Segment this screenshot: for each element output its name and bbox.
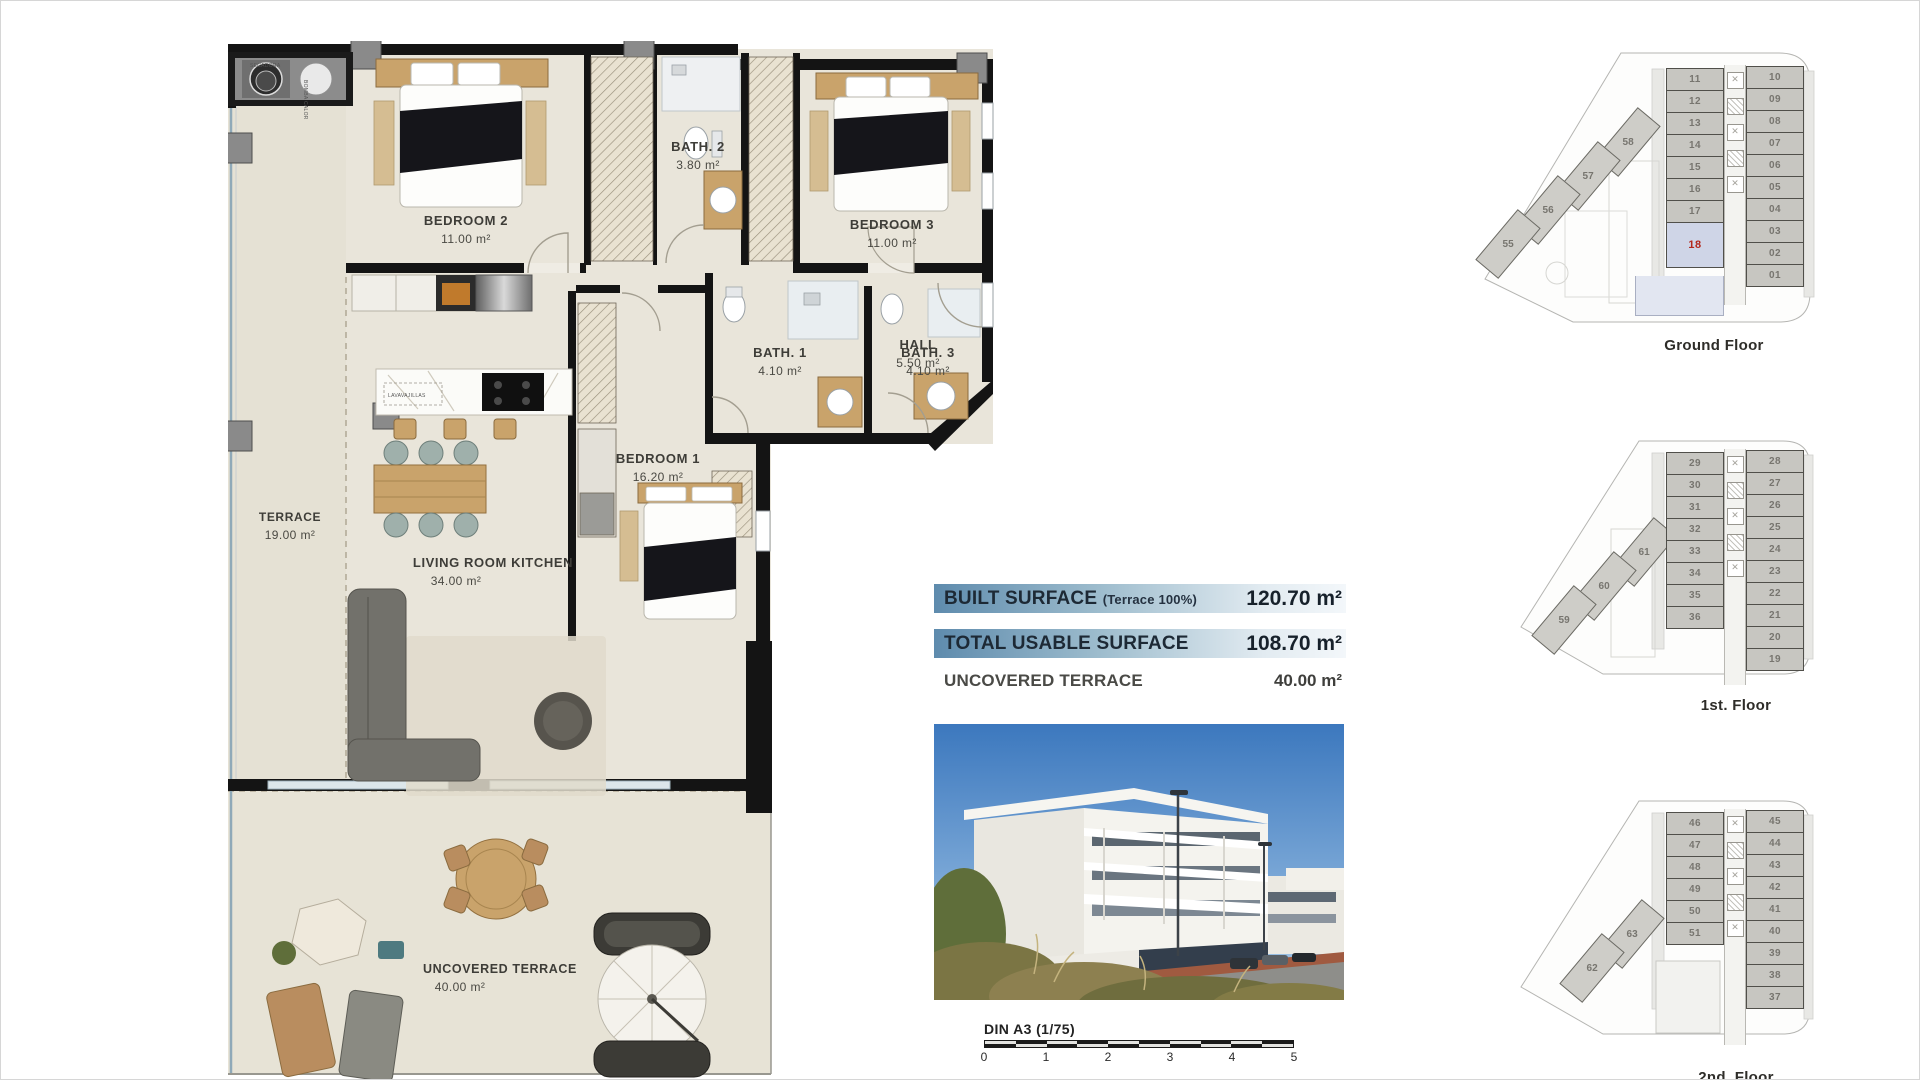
scale-segment (1108, 1041, 1139, 1047)
unit-number: 42 (1769, 882, 1781, 893)
stairs-icon (1727, 894, 1744, 911)
unit-number: 15 (1689, 162, 1701, 173)
unit-10: 10 (1746, 66, 1804, 89)
unit-51: 51 (1666, 922, 1724, 945)
built-surface-label: BUILT SURFACE (944, 588, 1097, 609)
unit-number: 49 (1689, 884, 1701, 895)
unit-59: 59 (1531, 585, 1596, 655)
unit-number: 56 (1542, 205, 1553, 216)
scale-tick: 2 (1105, 1050, 1112, 1064)
unit-02: 02 (1746, 242, 1804, 265)
unit-number: 21 (1769, 610, 1781, 621)
elevator-core: ✕ ✕ ✕ (1724, 809, 1746, 1045)
unit-23: 23 (1746, 560, 1804, 583)
unit-number: 23 (1769, 566, 1781, 577)
unit-number: 04 (1769, 204, 1781, 215)
svg-text:11.00 m²: 11.00 m² (441, 232, 491, 246)
unit-number: 57 (1582, 171, 1593, 182)
room-bath2: BATH. 2 (671, 139, 725, 154)
unit-number: 32 (1689, 524, 1701, 535)
svg-text:11.00 m²: 11.00 m² (867, 236, 917, 250)
unit-number: 24 (1769, 544, 1781, 555)
unit-01: 01 (1746, 264, 1804, 287)
right-unit-column: 10090807060504030201 (1746, 67, 1804, 287)
unit-33: 33 (1666, 540, 1724, 563)
built-surface-value: 120.70 m² (1246, 587, 1346, 611)
unit-62: 62 (1559, 933, 1624, 1003)
room-bath1: BATH. 1 (753, 345, 807, 360)
stairs-icon (1727, 842, 1744, 859)
unit-28: 28 (1746, 450, 1804, 473)
scale-segment (1201, 1041, 1232, 1047)
unit-number: 58 (1622, 137, 1633, 148)
unit-number: 09 (1769, 94, 1781, 105)
unit-number: 46 (1689, 818, 1701, 829)
unit-number: 35 (1689, 590, 1701, 601)
elevator-icon: ✕ (1727, 868, 1744, 885)
unit-number: 12 (1689, 96, 1701, 107)
stairs-icon (1727, 482, 1744, 499)
unit-number: 27 (1769, 478, 1781, 489)
floor-label: 2nd. Floor (1651, 1069, 1821, 1080)
unit-07: 07 (1746, 132, 1804, 155)
room-bedroom1: BEDROOM 1 (616, 451, 700, 466)
unit-number: 43 (1769, 860, 1781, 871)
unit-27: 27 (1746, 472, 1804, 495)
elevator-icon: ✕ (1727, 920, 1744, 937)
building-photo (934, 724, 1344, 1000)
unit-number: 34 (1689, 568, 1701, 579)
miniplan-first-floor: 616059 2930313233343536 ✕ ✕ ✕ 2827262524… (1511, 419, 1823, 735)
uncovered-terrace-row: UNCOVERED TERRACE 40.00 m² (934, 671, 1346, 691)
room-bedroom2: BEDROOM 2 (424, 213, 508, 228)
unit-32: 32 (1666, 518, 1724, 541)
unit-number: 01 (1769, 270, 1781, 281)
unit-41: 41 (1746, 898, 1804, 921)
scale-segment (1077, 1041, 1108, 1047)
scale-segments (984, 1040, 1294, 1048)
scale-tick: 4 (1229, 1050, 1236, 1064)
scale-segment (1262, 1041, 1293, 1047)
scale-tick: 3 (1167, 1050, 1174, 1064)
unit-number: 14 (1689, 140, 1701, 151)
unit-35: 35 (1666, 584, 1724, 607)
unit-number: 55 (1502, 239, 1513, 250)
scale-segment (1139, 1041, 1170, 1047)
elevator-icon: ✕ (1727, 72, 1744, 89)
unit-number: 17 (1689, 206, 1701, 217)
room-bath3: BATH. 3 (901, 345, 955, 360)
unit-03: 03 (1746, 220, 1804, 243)
usable-surface-label: TOTAL USABLE SURFACE (944, 633, 1189, 654)
svg-text:40.00 m²: 40.00 m² (435, 980, 486, 994)
scale-segment (1231, 1041, 1262, 1047)
brochure-page: SECADORA BOMBA CALOR (0, 0, 1920, 1080)
elevator-icon: ✕ (1727, 176, 1744, 193)
floor-label: Ground Floor (1619, 337, 1809, 354)
main-floorplan: SECADORA BOMBA CALOR (228, 41, 1018, 1080)
unit-48: 48 (1666, 856, 1724, 879)
unit-44: 44 (1746, 832, 1804, 855)
unit-26: 26 (1746, 494, 1804, 517)
bedroom2-bed (374, 59, 548, 207)
unit-13: 13 (1666, 112, 1724, 135)
elevator-icon: ✕ (1727, 508, 1744, 525)
svg-text:34.00 m²: 34.00 m² (431, 574, 482, 588)
miniplan-second-floor: 6362 464748495051 ✕ ✕ ✕ 4544434241403938… (1511, 779, 1823, 1080)
left-unit-column: 2930313233343536 (1666, 453, 1724, 629)
unit-30: 30 (1666, 474, 1724, 497)
scale-segment (1170, 1041, 1201, 1047)
unit-number: 62 (1586, 963, 1597, 974)
unit-number: 22 (1769, 588, 1781, 599)
unit-37: 37 (1746, 986, 1804, 1009)
unit-47: 47 (1666, 834, 1724, 857)
surface-table: BUILT SURFACE (Terrace 100%) 120.70 m² T… (934, 584, 1346, 691)
unit-number: 51 (1689, 928, 1701, 939)
unit-number: 39 (1769, 948, 1781, 959)
unit-number: 31 (1689, 502, 1701, 513)
unit-24: 24 (1746, 538, 1804, 561)
svg-text:16.20 m²: 16.20 m² (633, 470, 684, 484)
elevator-core: ✕ ✕ ✕ (1724, 65, 1746, 305)
unit-number: 45 (1769, 816, 1781, 827)
unit-number: 48 (1689, 862, 1701, 873)
unit-55: 55 (1475, 209, 1540, 279)
unit-39: 39 (1746, 942, 1804, 965)
unit-number: 38 (1769, 970, 1781, 981)
unit-45: 45 (1746, 810, 1804, 833)
unit-number: 28 (1769, 456, 1781, 467)
floor-label: 1st. Floor (1651, 697, 1821, 714)
room-uncovered-terrace: UNCOVERED TERRACE (423, 962, 577, 976)
unit-14: 14 (1666, 134, 1724, 157)
scale-segment (1016, 1041, 1047, 1047)
unit-50: 50 (1666, 900, 1724, 923)
unit-number: 25 (1769, 522, 1781, 533)
elevator-core: ✕ ✕ ✕ (1724, 449, 1746, 685)
dryer-label: SECADORA (250, 63, 281, 69)
unit-16: 16 (1666, 178, 1724, 201)
heatpump-label: BOMBA CALOR (302, 80, 308, 120)
unit-number: 50 (1689, 906, 1701, 917)
unit-number: 19 (1769, 654, 1781, 665)
svg-text:4.10 m²: 4.10 m² (758, 364, 801, 378)
unit-46: 46 (1666, 812, 1724, 835)
unit-number: 63 (1626, 929, 1637, 940)
unit-number: 13 (1689, 118, 1701, 129)
scale-ticks: 012345 (984, 1050, 1296, 1064)
unit-20: 20 (1746, 626, 1804, 649)
unit-05: 05 (1746, 176, 1804, 199)
unit-19: 19 (1746, 648, 1804, 671)
unit-36: 36 (1666, 606, 1724, 629)
unit-number: 29 (1689, 458, 1701, 469)
unit-number: 08 (1769, 116, 1781, 127)
scale-segment (985, 1041, 1016, 1047)
uncovered-terrace-value: 40.00 m² (1274, 671, 1346, 691)
unit-49: 49 (1666, 878, 1724, 901)
unit-number: 59 (1558, 615, 1569, 626)
unit-42: 42 (1746, 876, 1804, 899)
left-unit-column: 1112131415161718 (1666, 69, 1724, 268)
room-terrace: TERRACE (259, 510, 321, 524)
unit-number: 40 (1769, 926, 1781, 937)
miniplan-ground-floor: 58575655 1112131415161718 ✕ ✕ ✕ 10090807… (1469, 41, 1821, 371)
bedroom3-bed (810, 73, 978, 211)
unit-number: 60 (1598, 581, 1609, 592)
usable-surface-row: TOTAL USABLE SURFACE 108.70 m² (934, 629, 1346, 658)
unit-number: 41 (1769, 904, 1781, 915)
unit-number: 33 (1689, 546, 1701, 557)
elevator-icon: ✕ (1727, 124, 1744, 141)
unit-number: 05 (1769, 182, 1781, 193)
unit-number: 18 (1688, 239, 1701, 251)
unit-11: 11 (1666, 68, 1724, 91)
stairs-icon (1727, 150, 1744, 167)
unit-number: 16 (1689, 184, 1701, 195)
unit-number: 61 (1638, 547, 1649, 558)
unit-22: 22 (1746, 582, 1804, 605)
elevator-icon: ✕ (1727, 816, 1744, 833)
built-surface-row: BUILT SURFACE (Terrace 100%) 120.70 m² (934, 584, 1346, 613)
dishwasher-label: LAVAVAJILLAS (388, 393, 426, 399)
unit-40: 40 (1746, 920, 1804, 943)
unit-number: 07 (1769, 138, 1781, 149)
unit-21: 21 (1746, 604, 1804, 627)
unit-number: 47 (1689, 840, 1701, 851)
elevator-icon: ✕ (1727, 560, 1744, 577)
stairs-icon (1727, 534, 1744, 551)
right-unit-column: 28272625242322212019 (1746, 451, 1804, 671)
room-living: LIVING ROOM KITCHEN (413, 555, 573, 570)
unit-06: 06 (1746, 154, 1804, 177)
unit-09: 09 (1746, 88, 1804, 111)
unit-29: 29 (1666, 452, 1724, 475)
unit-31: 31 (1666, 496, 1724, 519)
building-photo-art (934, 724, 1344, 1000)
elevator-icon: ✕ (1727, 456, 1744, 473)
unit-number: 20 (1769, 632, 1781, 643)
usable-surface-value: 108.70 m² (1246, 632, 1346, 656)
unit-number: 36 (1689, 612, 1701, 623)
unit-number: 03 (1769, 226, 1781, 237)
dining-set (374, 441, 486, 537)
highlight-extension (1635, 276, 1724, 316)
svg-text:19.00 m²: 19.00 m² (265, 528, 316, 542)
uncovered-terrace-label: UNCOVERED TERRACE (944, 671, 1143, 690)
scale-label: DIN A3 (1/75) (984, 1021, 1296, 1037)
unit-38: 38 (1746, 964, 1804, 987)
unit-18-highlighted: 18 (1666, 222, 1724, 268)
unit-number: 11 (1689, 74, 1701, 85)
room-bedroom3: BEDROOM 3 (850, 217, 934, 232)
left-unit-column: 464748495051 (1666, 813, 1724, 945)
unit-number: 30 (1689, 480, 1701, 491)
svg-text:4.10 m²: 4.10 m² (906, 364, 949, 378)
stairs-icon (1727, 98, 1744, 115)
unit-number: 10 (1769, 72, 1781, 83)
unit-25: 25 (1746, 516, 1804, 539)
unit-43: 43 (1746, 854, 1804, 877)
scale-tick: 1 (1043, 1050, 1050, 1064)
unit-number: 06 (1769, 160, 1781, 171)
unit-number: 02 (1769, 248, 1781, 259)
unit-number: 26 (1769, 500, 1781, 511)
scale-bar: DIN A3 (1/75) 012345 (984, 1021, 1296, 1064)
built-surface-note: (Terrace 100%) (1103, 592, 1197, 607)
unit-17: 17 (1666, 200, 1724, 223)
unit-04: 04 (1746, 198, 1804, 221)
unit-number: 44 (1769, 838, 1781, 849)
unit-08: 08 (1746, 110, 1804, 133)
svg-text:3.80 m²: 3.80 m² (676, 158, 719, 172)
unit-15: 15 (1666, 156, 1724, 179)
scale-tick: 5 (1291, 1050, 1298, 1064)
unit-34: 34 (1666, 562, 1724, 585)
unit-number: 37 (1769, 992, 1781, 1003)
unit-12: 12 (1666, 90, 1724, 113)
scale-segment (1047, 1041, 1078, 1047)
right-unit-column: 454443424140393837 (1746, 811, 1804, 1009)
scale-tick: 0 (981, 1050, 988, 1064)
